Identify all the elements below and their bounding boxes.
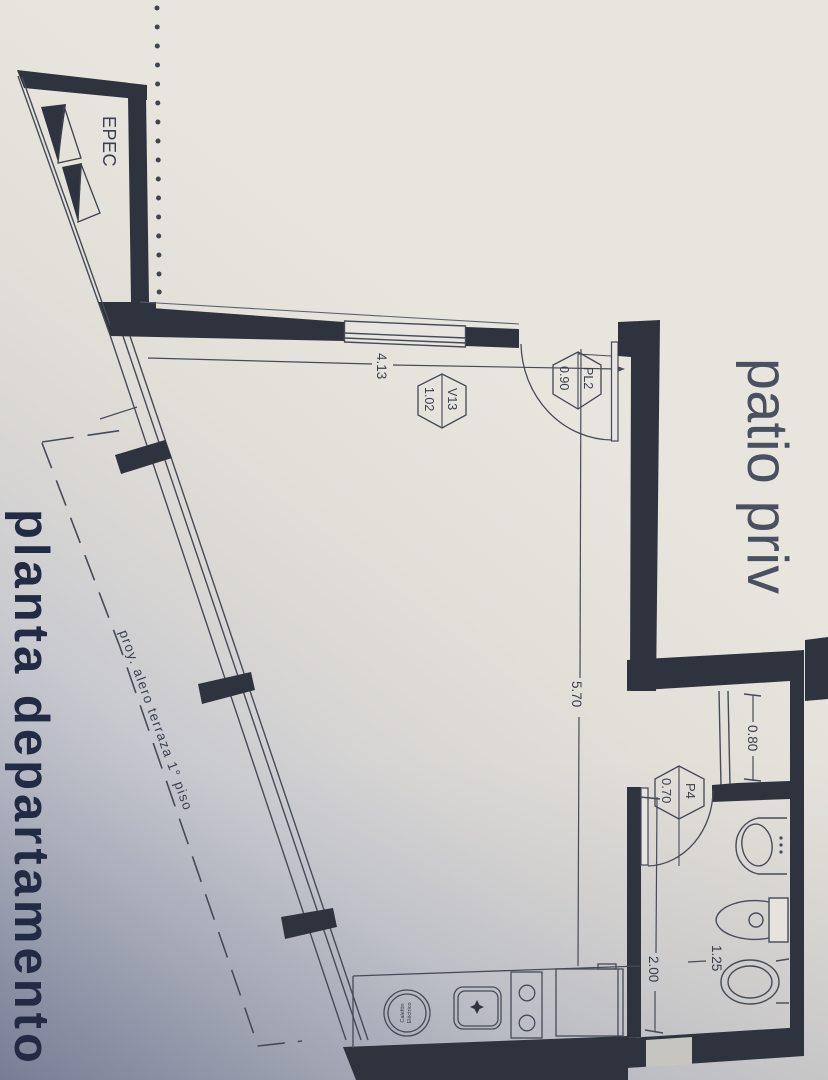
svg-text:P4: P4	[683, 783, 698, 799]
svg-text:0.70: 0.70	[659, 778, 674, 803]
svg-text:PL2: PL2	[581, 367, 595, 389]
svg-text:2.00: 2.00	[646, 956, 661, 982]
svg-text:Calefón: Calefón	[400, 1004, 406, 1023]
svg-text:5.70: 5.70	[569, 681, 584, 707]
svg-text:0.90: 0.90	[557, 366, 571, 390]
svg-text:patio priv: patio priv	[735, 358, 799, 594]
svg-text:4.13: 4.13	[374, 353, 389, 379]
svg-text:0.80: 0.80	[745, 725, 760, 751]
svg-text:Eléctrico: Eléctrico	[407, 1002, 413, 1023]
svg-text:EPEC: EPEC	[99, 116, 119, 167]
svg-text:1.25: 1.25	[709, 945, 724, 971]
svg-text:planta departamento: planta departamento	[4, 509, 58, 1067]
svg-text:V13: V13	[445, 388, 459, 410]
svg-text:1.02: 1.02	[422, 387, 436, 411]
